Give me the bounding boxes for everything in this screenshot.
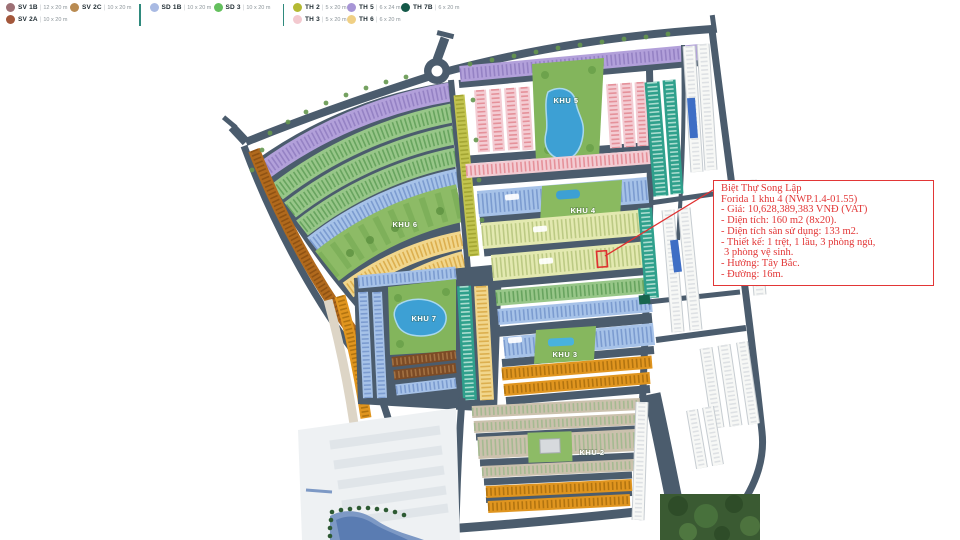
park-tree [541, 71, 549, 79]
tree [286, 120, 291, 125]
tree [404, 75, 409, 80]
tree [393, 510, 398, 515]
tree [366, 506, 371, 511]
legend-item-th3: TH 3 | 5 x 20 m [293, 15, 343, 24]
row-label-chip [505, 193, 519, 200]
property-info-popup: Biệt Thự Song Lập Forida 1 khu 4 (NWP.1.… [713, 180, 934, 286]
legend-code: TH 7B [413, 4, 433, 11]
roundabout-island [432, 66, 443, 77]
legend-separator: | [40, 5, 42, 11]
legend-item-th2: TH 2 | 5 x 20 m [293, 3, 343, 12]
tree [328, 526, 333, 531]
property-floor-area: - Diện tích sàn sử dụng: 133 m2. [721, 227, 926, 238]
legend-divider [139, 4, 141, 26]
strip [724, 345, 736, 426]
color-swatch [70, 3, 79, 12]
strip [363, 292, 368, 398]
tree [534, 50, 539, 55]
khu3-label: KHU 3 [552, 350, 577, 359]
tree [622, 37, 627, 42]
tree [357, 506, 362, 511]
park-tree [586, 144, 594, 152]
legend-code: TH 6 [359, 16, 374, 23]
park-tree [436, 207, 444, 215]
tree [260, 148, 265, 153]
legend-size: 5 x 20 m [325, 17, 346, 23]
legend-row: SV 2A | 10 x 20 m [6, 15, 130, 24]
legend-code: TH 3 [305, 16, 320, 23]
legend-code: SV 2A [18, 16, 38, 23]
legend-separator: | [40, 17, 42, 23]
row-label-chip [508, 336, 522, 343]
tree [666, 32, 671, 37]
legend-row: SV 1B | 12 x 20 m SV 2C | 10 x 20 m [6, 3, 130, 12]
legend-code: SV 2C [82, 4, 102, 11]
legend-code: SD 1B [162, 4, 182, 11]
tree [339, 508, 344, 513]
water-sliver [306, 490, 332, 492]
legend-code: TH 5 [359, 4, 374, 11]
park-tree [396, 340, 404, 348]
tree-canopy [694, 504, 718, 528]
tree [600, 40, 605, 45]
tree [556, 46, 561, 51]
legend-group-th: TH 2 | 5 x 20 m TH 5 | 6 x 24 m TH 7B | … [293, 3, 451, 24]
color-swatch [401, 3, 410, 12]
legend-row: TH 3 | 5 x 20 m TH 6 | 6 x 20 m [293, 15, 451, 24]
tree-canopy [740, 516, 760, 536]
park-tree [366, 236, 374, 244]
color-swatch [150, 3, 159, 12]
road-end-cap [222, 115, 237, 129]
tree [644, 35, 649, 40]
khu7-section: KHU 7 [354, 264, 502, 412]
legend-size: 6 x 24 m [379, 5, 400, 11]
tree [328, 534, 333, 539]
masterplan-viewer: SV 1B | 12 x 20 m SV 2C | 10 x 20 m SV 2… [0, 0, 960, 540]
tree [348, 507, 353, 512]
legend-size: 10 x 20 m [107, 5, 131, 11]
legend-item-sd3: SD 3 | 10 x 20 m [214, 3, 274, 12]
legend-size: 10 x 20 m [187, 5, 211, 11]
tree [384, 80, 389, 85]
tree [304, 110, 309, 115]
tree [364, 86, 369, 91]
legend-size: 10 x 20 m [43, 17, 67, 23]
legend-item-th5: TH 5 | 6 x 24 m [347, 3, 397, 12]
legend-separator: | [243, 5, 245, 11]
tree [468, 62, 473, 67]
tree [402, 513, 407, 518]
legend-item-sv2c: SV 2C | 10 x 20 m [70, 3, 130, 12]
legend-row: TH 2 | 5 x 20 m TH 5 | 6 x 24 m TH 7B | … [293, 3, 451, 12]
road-stub [437, 38, 445, 60]
legend: SV 1B | 12 x 20 m SV 2C | 10 x 20 m SV 2… [6, 3, 451, 26]
existing-area-sketch [298, 408, 460, 540]
legend-code: TH 2 [305, 4, 320, 11]
legend-size: 10 x 20 m [246, 5, 270, 11]
row-label-chip [539, 257, 553, 264]
legend-item-th7b: TH 7B | 6 x 20 m [401, 3, 451, 12]
color-swatch [347, 15, 356, 24]
strip [496, 285, 652, 298]
tree [477, 178, 482, 183]
khu6-label: KHU 6 [392, 220, 417, 229]
tree [490, 58, 495, 63]
street-name-banner [691, 98, 694, 138]
tree [480, 218, 485, 223]
legend-size: 12 x 20 m [43, 5, 67, 11]
tree [329, 518, 334, 523]
property-road: - Đường: 16m. [721, 270, 926, 281]
satellite-photo-trees [660, 494, 760, 540]
legend-separator: | [376, 17, 378, 23]
tree [344, 93, 349, 98]
park-tree [588, 66, 596, 74]
legend-size: 6 x 20 m [379, 17, 400, 23]
khu4-label: KHU 4 [570, 206, 595, 215]
khu2-clubhouse [540, 439, 560, 454]
tree [375, 507, 380, 512]
khu2-label: KHU 2 [579, 448, 604, 457]
color-swatch [347, 3, 356, 12]
tree [324, 101, 329, 106]
legend-group-sd: SD 1B | 10 x 20 m SD 3 | 10 x 20 m [150, 3, 274, 12]
legend-code: SV 1B [18, 4, 38, 11]
color-swatch [6, 3, 15, 12]
tree [512, 54, 517, 59]
color-swatch [293, 15, 302, 24]
tree [330, 510, 335, 515]
park-tree [394, 294, 402, 302]
color-swatch [214, 3, 223, 12]
road [656, 328, 746, 340]
legend-code: SD 3 [226, 4, 241, 11]
tree [250, 168, 255, 173]
khu3-pool [548, 337, 574, 346]
street-name-banner [674, 240, 678, 272]
khu5-label: KHU 5 [553, 96, 578, 105]
legend-group-sv: SV 1B | 12 x 20 m SV 2C | 10 x 20 m SV 2… [6, 3, 130, 24]
selected-lot-marker[interactable] [596, 251, 607, 268]
strip [377, 292, 382, 398]
utility-block [639, 299, 650, 300]
khu4-lake [556, 189, 581, 200]
tree [268, 131, 273, 136]
tree [471, 98, 476, 103]
legend-row: SD 1B | 10 x 20 m SD 3 | 10 x 20 m [150, 3, 274, 12]
road-end-cap [437, 30, 455, 39]
color-swatch [6, 15, 15, 24]
park-tree [346, 249, 354, 257]
legend-separator: | [376, 5, 378, 11]
row-label-chip [533, 225, 547, 232]
tree-canopy [725, 495, 743, 513]
color-swatch [293, 3, 302, 12]
tree-canopy [668, 496, 688, 516]
legend-separator: | [184, 5, 186, 11]
legend-item-th6: TH 6 | 6 x 20 m [347, 15, 397, 24]
legend-divider [283, 4, 285, 26]
legend-size: 5 x 20 m [325, 5, 346, 11]
khu7-label: KHU 7 [411, 314, 436, 323]
legend-separator: | [435, 5, 437, 11]
legend-item-sd1b: SD 1B | 10 x 20 m [150, 3, 210, 12]
legend-item-sv2a: SV 2A | 10 x 20 m [6, 15, 66, 24]
strip [358, 273, 456, 282]
tree [474, 138, 479, 143]
legend-separator: | [322, 17, 324, 23]
legend-separator: | [104, 5, 106, 11]
park-tree [442, 288, 450, 296]
legend-separator: | [322, 5, 324, 11]
tree [384, 508, 389, 513]
legend-item-sv1b: SV 1B | 12 x 20 m [6, 3, 66, 12]
tree [578, 43, 583, 48]
legend-size: 6 x 20 m [438, 5, 459, 11]
